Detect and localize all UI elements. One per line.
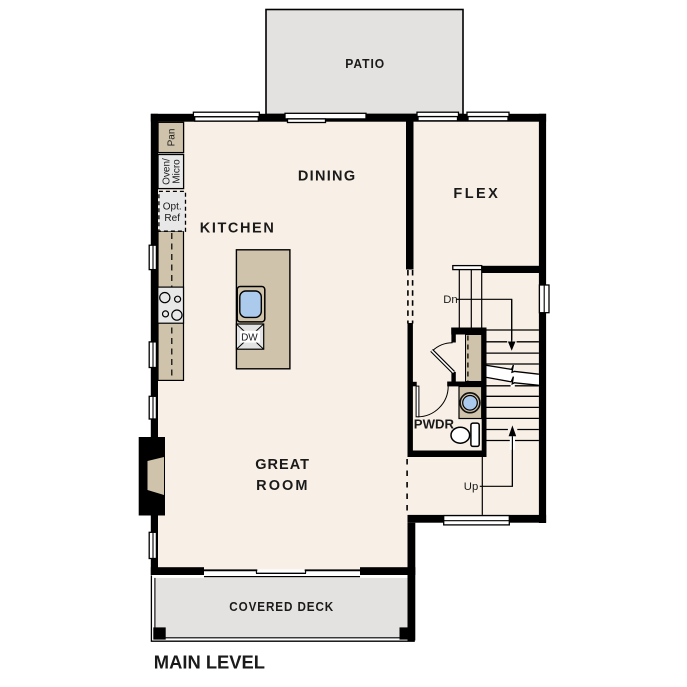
svg-text:Opt.: Opt. [163,202,182,213]
svg-text:Dn: Dn [443,294,457,306]
svg-text:MAIN LEVEL: MAIN LEVEL [154,652,265,672]
svg-text:COVERED DECK: COVERED DECK [229,599,334,614]
svg-text:KITCHEN: KITCHEN [200,221,275,237]
svg-text:Pan: Pan [166,129,177,147]
svg-text:ROOM: ROOM [256,478,308,494]
svg-text:Micro: Micro [171,159,182,184]
svg-text:PATIO: PATIO [345,56,385,71]
svg-text:DW: DW [241,333,258,344]
svg-text:GREAT: GREAT [255,457,310,473]
svg-text:PWDR: PWDR [414,417,455,432]
svg-text:Up: Up [464,481,478,493]
svg-text:FLEX: FLEX [453,186,499,202]
svg-text:Ref: Ref [164,213,180,224]
svg-text:DINING: DINING [298,168,356,184]
